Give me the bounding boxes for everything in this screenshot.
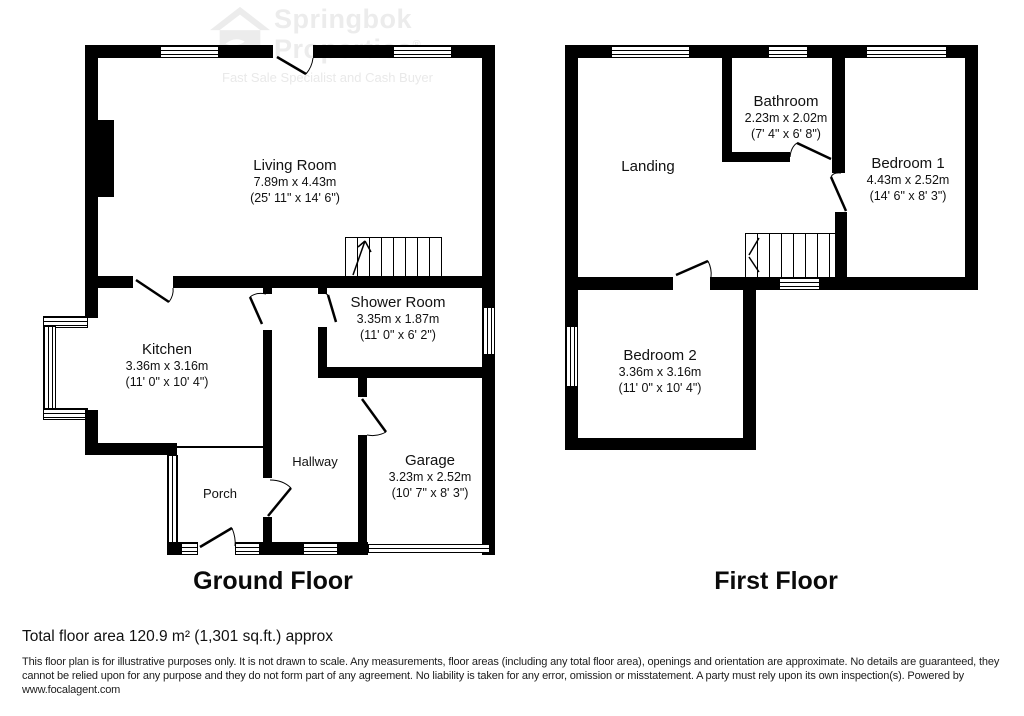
floorplan-drawing: Living Room 7.89m x 4.43m (25' 11" x 14'…	[0, 0, 1024, 716]
bedroom1-door	[831, 177, 846, 211]
first-floor-title: First Floor	[714, 567, 838, 596]
living-room-imperial: (25' 11" x 14' 6")	[250, 191, 340, 207]
door-arc	[831, 173, 841, 177]
bedroom2-name: Bedroom 2	[619, 347, 702, 365]
door-arc	[790, 143, 797, 157]
porch-front-door	[200, 528, 232, 547]
room-label-garage: Garage 3.23m x 2.52m (10' 7" x 8' 3")	[389, 452, 472, 501]
bedroom1-name: Bedroom 1	[867, 155, 950, 173]
door-arc	[708, 261, 711, 277]
front-door	[277, 57, 306, 74]
kitchen-imperial: (11' 0" x 10' 4")	[126, 375, 209, 391]
shower-room-metric: 3.35m x 1.87m	[350, 312, 445, 328]
door-arc	[306, 58, 313, 74]
door-arc	[270, 480, 291, 488]
bedroom1-metric: 4.43m x 2.52m	[867, 173, 950, 189]
room-label-bathroom: Bathroom 2.23m x 2.02m (7' 4" x 6' 8")	[745, 93, 828, 142]
room-label-kitchen: Kitchen 3.36m x 3.16m (11' 0" x 10' 4")	[126, 341, 209, 390]
door-arc	[367, 432, 386, 436]
shower-room-door	[328, 295, 336, 322]
garage-imperial: (10' 7" x 8' 3")	[389, 486, 472, 502]
porch-hall-door	[268, 488, 291, 516]
porch-name: Porch	[203, 485, 237, 503]
room-label-bedroom1: Bedroom 1 4.43m x 2.52m (14' 6" x 8' 3")	[867, 155, 950, 204]
door-arc	[232, 528, 235, 546]
room-label-shower-room: Shower Room 3.35m x 1.87m (11' 0" x 6' 2…	[350, 294, 445, 343]
bathroom-door	[797, 143, 831, 159]
stair-arrow-head	[365, 241, 371, 252]
kitchen-door	[250, 297, 262, 324]
bathroom-imperial: (7' 4" x 6' 8")	[745, 127, 828, 143]
shower-room-imperial: (11' 0" x 6' 2")	[350, 328, 445, 344]
room-label-bedroom2: Bedroom 2 3.36m x 3.16m (11' 0" x 10' 4"…	[619, 347, 702, 396]
living-room-metric: 7.89m x 4.43m	[250, 175, 340, 191]
bedroom2-door	[676, 261, 708, 275]
ground-floor-title: Ground Floor	[193, 567, 353, 596]
garage-side-door	[362, 399, 386, 432]
room-label-living-room: Living Room 7.89m x 4.43m (25' 11" x 14'…	[250, 157, 340, 206]
floorplan-page: { "watermark": { "brand_line1": "Springb…	[0, 0, 1024, 716]
landing-name: Landing	[621, 158, 674, 176]
garage-metric: 3.23m x 2.52m	[389, 470, 472, 486]
room-label-hallway: Hallway	[292, 453, 338, 471]
room-label-porch: Porch	[203, 485, 237, 503]
room-label-landing: Landing	[621, 158, 674, 176]
kitchen-name: Kitchen	[126, 341, 209, 359]
door-arc	[169, 288, 173, 302]
bedroom1-imperial: (14' 6" x 8' 3")	[867, 189, 950, 205]
hallway-name: Hallway	[292, 453, 338, 471]
bedroom2-metric: 3.36m x 3.16m	[619, 365, 702, 381]
bathroom-metric: 2.23m x 2.02m	[745, 111, 828, 127]
door-arc	[250, 293, 266, 297]
living-room-door	[136, 280, 169, 302]
bathroom-name: Bathroom	[745, 93, 828, 111]
kitchen-metric: 3.36m x 3.16m	[126, 359, 209, 375]
stair-arrow	[749, 257, 759, 272]
door-arc	[321, 293, 328, 295]
stair-arrow	[749, 238, 759, 255]
living-room-name: Living Room	[250, 157, 340, 175]
bedroom2-imperial: (11' 0" x 10' 4")	[619, 381, 702, 397]
shower-room-name: Shower Room	[350, 294, 445, 312]
garage-name: Garage	[389, 452, 472, 470]
